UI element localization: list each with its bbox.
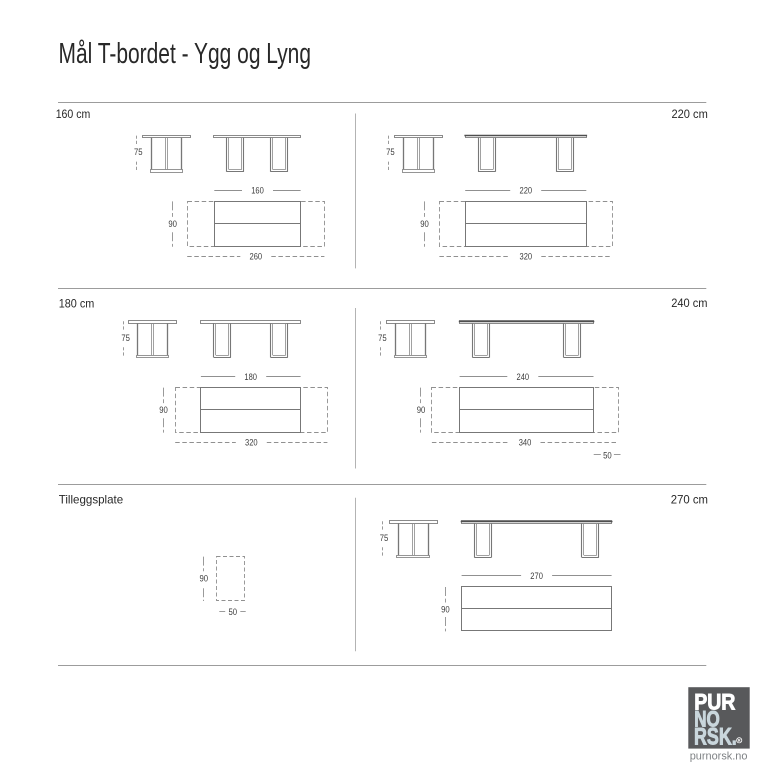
svg-text:purnorsk.no: purnorsk.no — [690, 750, 748, 762]
svg-text:270: 270 — [530, 571, 543, 581]
svg-text:240 cm: 240 cm — [671, 296, 707, 310]
svg-text:180: 180 — [244, 372, 257, 382]
svg-text:50: 50 — [229, 607, 238, 617]
svg-text:75: 75 — [380, 533, 389, 543]
svg-text:270 cm: 270 cm — [671, 493, 708, 507]
svg-text:75: 75 — [386, 147, 395, 157]
svg-text:90: 90 — [420, 219, 429, 229]
svg-text:320: 320 — [520, 252, 533, 262]
svg-text:RSK.: RSK. — [694, 723, 737, 750]
svg-text:90: 90 — [417, 405, 426, 415]
svg-text:160 cm: 160 cm — [56, 107, 91, 121]
svg-text:260: 260 — [250, 252, 263, 262]
svg-text:75: 75 — [134, 147, 143, 157]
svg-text:R: R — [738, 738, 741, 743]
svg-text:Tilleggsplate: Tilleggsplate — [59, 493, 124, 507]
svg-text:50: 50 — [603, 450, 612, 460]
svg-text:180 cm: 180 cm — [59, 296, 95, 310]
svg-text:220: 220 — [520, 186, 533, 196]
svg-text:90: 90 — [441, 604, 450, 614]
svg-text:320: 320 — [245, 437, 258, 447]
svg-text:90: 90 — [168, 219, 177, 229]
svg-text:90: 90 — [159, 405, 168, 415]
svg-text:160: 160 — [251, 186, 264, 196]
svg-text:75: 75 — [378, 333, 387, 343]
svg-text:240: 240 — [517, 372, 530, 382]
svg-text:75: 75 — [121, 333, 130, 343]
svg-text:340: 340 — [519, 437, 532, 447]
svg-text:Mål T-bordet - Ygg og Lyng: Mål T-bordet - Ygg og Lyng — [59, 38, 312, 70]
svg-text:220 cm: 220 cm — [672, 107, 708, 121]
svg-text:90: 90 — [200, 574, 209, 584]
